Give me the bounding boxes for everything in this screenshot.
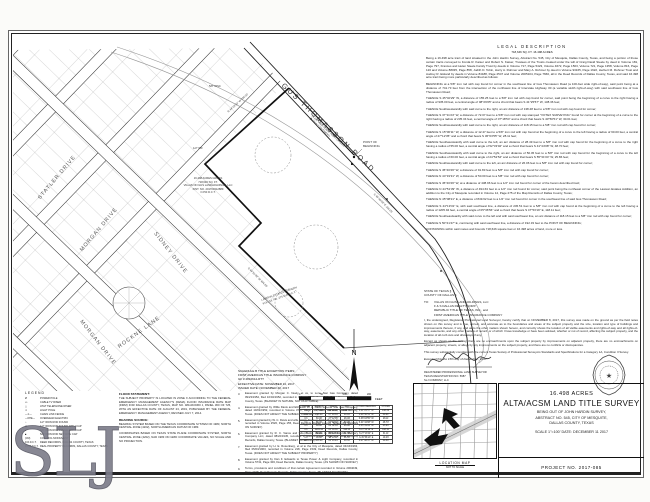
legend-heading: LEGEND bbox=[25, 391, 115, 395]
location-map-block: LOCATION MAP NOT TO SCALE bbox=[413, 383, 497, 469]
svg-text:FEET: FEET bbox=[375, 397, 383, 401]
cul-de-sac bbox=[113, 287, 145, 319]
svg-text:N: N bbox=[351, 350, 356, 357]
north-arrow: N bbox=[345, 327, 363, 393]
monument-label: 1/2" IRF bbox=[193, 147, 203, 151]
cert-to-label: TO: bbox=[424, 300, 434, 317]
location-map-subcaption: NOT TO SCALE bbox=[435, 465, 475, 469]
scale-bar: 050 100200 FEET bbox=[299, 393, 395, 401]
title-scale-date: SCALE 1"=100' DATE: DECEMBER 11 2017 bbox=[499, 430, 644, 434]
legal-description-paragraphs: Being a 16.498 acre tract of land situat… bbox=[426, 57, 638, 232]
title-block: 16.498 ACRES ALTA/ACSM LAND TITLE SURVEY… bbox=[498, 383, 644, 478]
title-survey-type: ALTA/ACSM LAND TITLE SURVEY bbox=[499, 399, 644, 408]
title-acres: 16.498 ACRES bbox=[499, 391, 644, 397]
surveyor-signature bbox=[424, 349, 494, 371]
point-of-beginning-label: POINT OF BEGINNING bbox=[363, 141, 380, 149]
cert-county: COUNTY OF DALLAS § bbox=[424, 293, 638, 297]
monument-label: 5/8" IRSC bbox=[209, 85, 221, 89]
curve-table: CURVERADIUS DELTAARC CHORD BEARINGCHORD … bbox=[299, 405, 393, 444]
project-number: PROJECT NO. 2017-085 bbox=[499, 457, 644, 478]
location-map-caption: LOCATION MAP bbox=[413, 461, 497, 465]
slj-logo-watermark: SLJ bbox=[10, 420, 120, 486]
bearing-text: BEARING SYSTEM BASED ON THE TEXAS COORDI… bbox=[119, 423, 231, 430]
curve-table-row: C9935.00'03°05'44" 50.51'S 47°08'37" W50… bbox=[300, 440, 393, 444]
legal-description: LEGAL DESCRIPTION 718,646 SQ. FT. 16.498… bbox=[426, 44, 638, 235]
survey-sheet-scan: GUS THOMASSON ROAD STATLER DRIVE MORGAN … bbox=[0, 0, 650, 502]
drawing-sheet: GUS THOMASSON ROAD STATLER DRIVE MORGAN … bbox=[8, 30, 644, 478]
schedule-b-heading: SCHEDULE B TITLE EXCEPTION ITEMS:FIRST A… bbox=[238, 369, 358, 390]
curve-table-rows: C1935.00'08°29'05" 138.48'S 41°25'57" W1… bbox=[300, 409, 393, 443]
flood-text: THE SUBJECT PROPERTY IS LOCATED IN ZONE … bbox=[119, 397, 231, 415]
site-area-label: 16.498 ACRES GROSS 718,646 SQ. FT. VILLA… bbox=[175, 177, 241, 195]
flood-statement: FLOOD STATEMENT: THE SUBJECT PROPERTY IS… bbox=[119, 392, 231, 446]
legal-description-subheading: 718,646 SQ. FT. 16.498 ACRES bbox=[426, 50, 638, 54]
svg-text:★: ★ bbox=[606, 372, 612, 380]
cert-to-lines: VILLAS ON GUS LANDHOLDINGS, LLCF & S DAL… bbox=[434, 300, 502, 317]
coordinates-text: COORDINATES BASED ON TEXAS STATE PLANE C… bbox=[119, 432, 231, 443]
title-line-3: DALLAS COUNTY, TEXAS bbox=[499, 421, 644, 427]
location-map bbox=[413, 383, 497, 459]
legal-description-heading: LEGAL DESCRIPTION bbox=[426, 44, 638, 49]
